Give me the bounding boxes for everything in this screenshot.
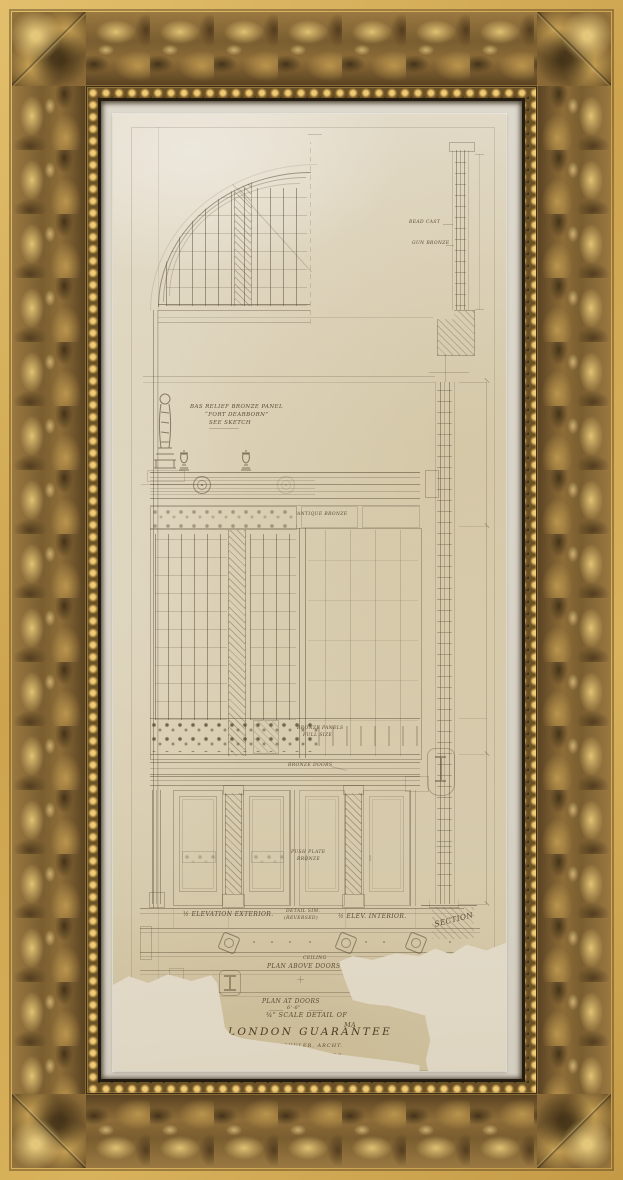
plan-dot	[309, 941, 311, 943]
annotation-gun-bronze: GUN BRONZE	[412, 241, 450, 247]
urn-finial	[239, 448, 253, 472]
annotation-push-plate-bronze: BRONZE	[297, 857, 320, 863]
door-leaf	[243, 790, 290, 906]
dimension-line	[429, 372, 469, 373]
drawing-line	[158, 322, 310, 323]
frieze-panel	[362, 506, 420, 528]
floor-line	[421, 905, 477, 906]
dimension-tick	[459, 718, 487, 719]
drawing-line	[308, 720, 418, 721]
ibeam-web	[229, 977, 231, 989]
door-panel	[249, 796, 284, 892]
ibeam-flange	[435, 780, 446, 782]
cornice-line	[150, 498, 420, 499]
projection-line	[415, 908, 416, 928]
frame-carving-bottom	[86, 1094, 537, 1168]
drawing-line	[158, 310, 310, 311]
annotation-push-plate: PUSH PLATE	[291, 850, 326, 856]
dimension-line	[486, 382, 487, 904]
plan-dot	[289, 941, 291, 943]
frame-carving-left	[12, 86, 86, 1094]
drawing-paper: BEAD CAST GUN BRONZE	[113, 114, 506, 1071]
annotation-fort-dearborn: “FORT DEARBORN”	[205, 412, 269, 419]
cresting-center-motif	[253, 720, 279, 754]
transom-line	[150, 774, 420, 775]
plan-line	[140, 928, 480, 929]
door-panel	[369, 796, 404, 892]
section-console	[425, 470, 439, 498]
door-head-line	[150, 780, 420, 781]
arch-centerline	[310, 142, 311, 324]
drawing-line	[150, 718, 420, 719]
caption-ceiling: CEILING	[303, 956, 327, 962]
door-panel	[179, 796, 217, 892]
pilaster-base	[149, 892, 165, 908]
dimension-tick	[475, 154, 484, 155]
drawing-line	[158, 317, 433, 318]
mullion	[325, 530, 326, 756]
section-line	[454, 382, 455, 904]
title-building-name: LONDON GUARANTEE	[228, 1026, 392, 1040]
drawing-line	[158, 304, 310, 305]
drawing-line	[150, 754, 420, 755]
annotation-see-sketch: SEE SKETCH	[209, 420, 251, 427]
floor-hatch	[432, 907, 474, 939]
door-head-line	[150, 776, 420, 777]
caption-reversed: (REVERSED)	[284, 916, 318, 922]
annotation-bead-cast: BEAD CAST	[409, 220, 440, 226]
transom-line	[150, 762, 420, 763]
ibeam-web	[440, 758, 442, 780]
drawing-line	[143, 376, 435, 377]
drawing-line	[308, 680, 418, 681]
door-jamb	[156, 790, 157, 904]
plan-dot	[253, 941, 255, 943]
plan-line	[140, 932, 480, 933]
plan-dot	[449, 941, 451, 943]
mat-board: BEAD CAST GUN BRONZE	[101, 101, 522, 1079]
grille-center-pilaster	[234, 180, 252, 306]
door-push-ornament	[182, 851, 216, 863]
screen-balusters-left	[155, 534, 227, 720]
frame-corner-scroll	[537, 12, 611, 86]
projection-line	[345, 908, 346, 928]
drawing-line	[308, 600, 418, 601]
projection-line	[228, 908, 229, 928]
underline	[209, 428, 239, 429]
door-jamb	[152, 790, 153, 904]
frame-carving-top	[86, 12, 537, 86]
door-pilaster	[225, 793, 242, 894]
anthemion-frieze	[150, 506, 297, 530]
annotation-antique-bronze: ANTIQUE BRONZE	[297, 512, 348, 518]
plan-end-jamb	[140, 926, 152, 960]
dimension-tick	[459, 382, 487, 383]
door-jamb	[160, 790, 161, 904]
screen-balusters-mid	[250, 534, 296, 720]
meeting-stile	[294, 790, 295, 906]
door-leaf	[173, 790, 223, 906]
meeting-stile	[290, 790, 291, 906]
cresting-ornament-row	[150, 720, 318, 752]
door-jamb	[410, 790, 411, 906]
rosette	[193, 476, 211, 494]
door-handle	[369, 855, 371, 861]
dimension-tick	[459, 904, 487, 905]
door-push-ornament	[251, 851, 284, 863]
annotation-bronze-doors: BRONZE DOORS	[288, 763, 332, 769]
jamb-moulding-ticks	[455, 154, 466, 306]
plan-mark	[300, 976, 301, 983]
mullion	[375, 530, 376, 756]
dimension-tick	[459, 526, 487, 527]
transom-line	[150, 768, 420, 769]
drawing-line	[468, 150, 469, 310]
door-leaf	[363, 790, 410, 906]
drawing-line	[308, 640, 418, 641]
leader-line	[446, 245, 454, 246]
picture-frame: BEAD CAST GUN BRONZE	[0, 0, 623, 1180]
title-scale-line: ¾" SCALE DETAIL OF	[266, 1011, 347, 1019]
door-pilaster	[345, 793, 362, 894]
leader-line	[443, 224, 453, 225]
door-head-line	[150, 785, 420, 786]
dimension-tick	[459, 754, 487, 755]
plan-dot	[383, 941, 385, 943]
frame-corner-scroll	[537, 1094, 611, 1168]
dimension-line	[479, 154, 480, 310]
annotation-bas-relief: BAS RELIEF BRONZE PANEL	[190, 404, 283, 411]
rosette	[277, 476, 295, 494]
mullion	[350, 530, 351, 756]
dimension-line	[445, 354, 446, 382]
dimension-tick	[475, 309, 484, 310]
annotation-bronze-panels: BRONZE PANELS	[297, 726, 344, 732]
caption-detail-sim: DETAIL SIM.	[286, 909, 320, 915]
drawing-line	[452, 150, 453, 310]
door-panel	[305, 796, 339, 892]
frame-corner-scroll	[12, 1094, 86, 1168]
mullion	[400, 530, 401, 756]
cornice-line	[150, 494, 315, 495]
projection-line	[173, 908, 174, 928]
drawing-line	[143, 382, 435, 383]
caption-elev-interior: ½ ELEV. INTERIOR.	[338, 913, 407, 921]
plan-dot	[271, 941, 273, 943]
plan-dot	[365, 941, 367, 943]
section-bracket	[427, 748, 455, 796]
door-leaf	[299, 790, 345, 906]
frame-carving-right	[537, 86, 611, 1094]
ibeam-flange	[224, 989, 236, 991]
door-jamb	[415, 790, 416, 906]
section-line	[435, 382, 436, 904]
urn-finial	[177, 448, 191, 472]
frame-corner-scroll	[12, 12, 86, 86]
drawing-line	[308, 134, 322, 135]
pilaster-base	[342, 894, 365, 908]
section-moulding-ticks	[437, 386, 452, 886]
arch-grille	[158, 172, 310, 306]
annotation-full-size: FULL SIZE	[303, 733, 332, 739]
drawing-line	[308, 560, 418, 561]
plan-ibeam-column	[219, 970, 241, 996]
cornice-line	[150, 472, 420, 473]
pilaster-base	[222, 894, 245, 908]
